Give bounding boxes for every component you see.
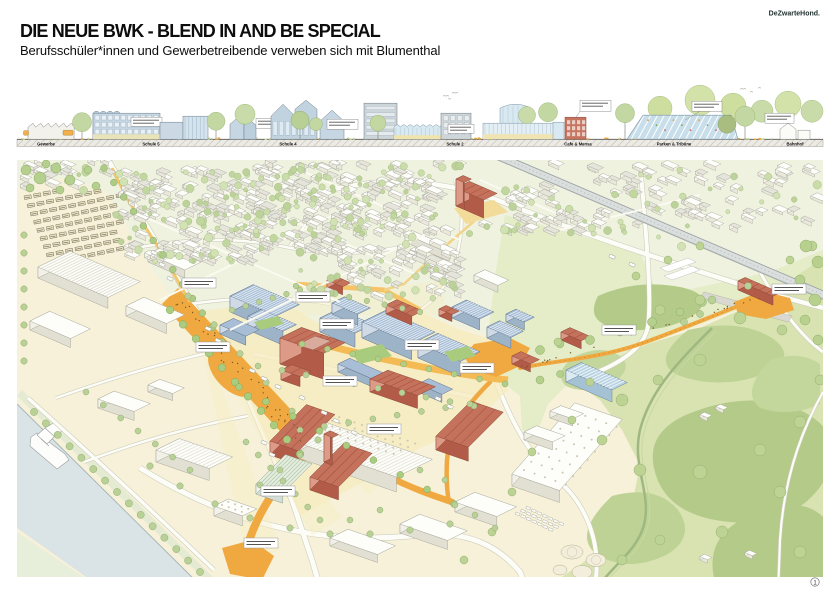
svg-text:Parken & Tribüne: Parken & Tribüne bbox=[657, 141, 692, 146]
svg-text:DeZwarteHond.: DeZwarteHond. bbox=[769, 11, 820, 18]
svg-text:DIE NEUE BWK - BLEND IN AND BE: DIE NEUE BWK - BLEND IN AND BE SPECIAL bbox=[20, 21, 381, 41]
svg-text:Berufsschüler*innen und Gewerb: Berufsschüler*innen und Gewerbetreibende… bbox=[20, 43, 440, 58]
svg-text:Schule 5: Schule 5 bbox=[142, 141, 160, 146]
svg-text:Bahnhof: Bahnhof bbox=[787, 141, 805, 146]
svg-text:Schule 2: Schule 2 bbox=[446, 141, 464, 146]
svg-text:Schule 4: Schule 4 bbox=[279, 141, 297, 146]
svg-text:Gewerbe: Gewerbe bbox=[37, 141, 55, 146]
svg-text:Cafe & Mensa: Cafe & Mensa bbox=[564, 141, 592, 146]
